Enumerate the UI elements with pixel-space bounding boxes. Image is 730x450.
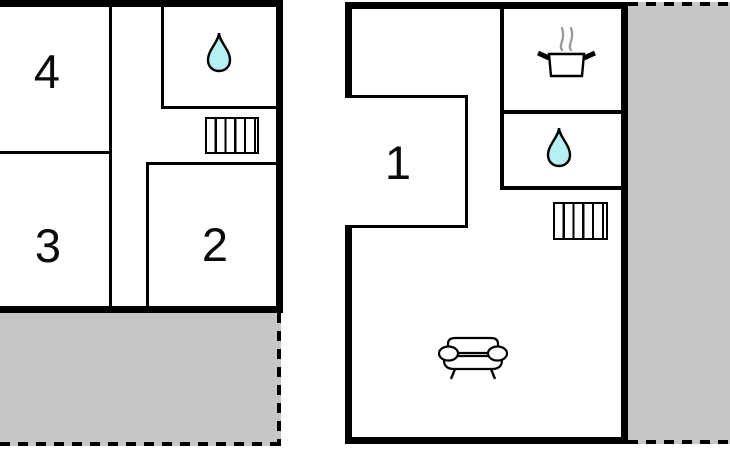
wall xyxy=(146,162,149,306)
wall xyxy=(500,9,504,190)
terrace-dashed-border-right xyxy=(277,313,281,446)
wall xyxy=(161,106,276,109)
room-label: 1 xyxy=(366,130,430,194)
terrace-dashed-border-bottom xyxy=(628,440,730,444)
room-label: 2 xyxy=(183,212,247,276)
room-label: 4 xyxy=(15,39,79,103)
terrace-area xyxy=(628,2,730,444)
stairs-icon xyxy=(205,117,259,154)
wall xyxy=(500,186,621,190)
stairs-icon xyxy=(553,202,608,240)
room-label: 3 xyxy=(16,213,80,277)
water-drop-icon xyxy=(546,126,572,168)
wall xyxy=(146,162,276,165)
terrace-dashed-border-bottom xyxy=(0,442,281,446)
wall xyxy=(161,7,164,109)
cooking-pot-icon xyxy=(537,26,596,78)
water-drop-icon xyxy=(206,31,232,73)
wall xyxy=(109,7,112,306)
terrace-area xyxy=(0,313,281,446)
sofa-icon xyxy=(438,336,508,380)
wall xyxy=(500,110,621,114)
wall xyxy=(0,151,112,154)
floorplan-canvas: 4 3 2 xyxy=(0,0,730,450)
terrace-dashed-border-top xyxy=(628,2,730,6)
